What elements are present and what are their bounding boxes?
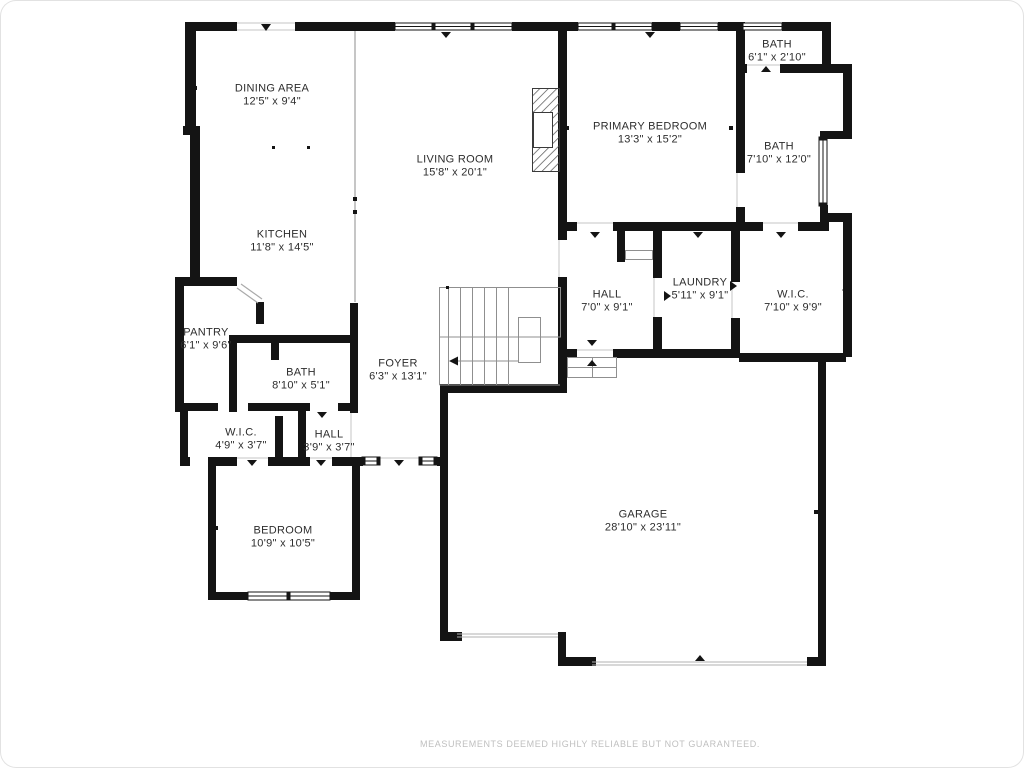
room-name: KITCHEN xyxy=(250,229,313,242)
room-label-garage: GARAGE28'10" x 23'11" xyxy=(605,509,681,534)
room-name: BATH xyxy=(272,367,330,380)
window-sidelight-right xyxy=(419,457,437,465)
room-label-bath-middle: BATH8'10" x 5'1" xyxy=(272,367,330,392)
room-dimensions: 3'9" x 3'7" xyxy=(303,441,354,454)
room-dimensions: 7'10" x 9'9" xyxy=(764,301,822,314)
disclaimer-text: MEASUREMENTS DEEMED HIGHLY RELIABLE BUT … xyxy=(420,739,760,749)
room-label-dining-area: DINING AREA12'5" x 9'4" xyxy=(235,83,309,108)
room-name: W.I.C. xyxy=(215,427,266,440)
window-bath-top xyxy=(743,23,782,30)
room-label-living-room: LIVING ROOM15'8" x 20'1" xyxy=(417,154,494,179)
stairs xyxy=(440,288,561,386)
room-dimensions: 6'1" x 2'10" xyxy=(748,51,806,64)
window-bedroom xyxy=(248,592,330,600)
room-dimensions: 13'3" x 15'2" xyxy=(593,133,707,146)
pantry-door-swing xyxy=(237,284,262,303)
room-dimensions: 5'11" x 9'1" xyxy=(672,289,729,302)
closet-bifold xyxy=(626,251,653,260)
room-dimensions: 11'8" x 14'5" xyxy=(250,241,313,254)
room-name: BATH xyxy=(747,141,811,154)
window-sidelight-left xyxy=(362,457,380,465)
room-label-primary-bedroom: PRIMARY BEDROOM13'3" x 15'2" xyxy=(593,121,707,146)
room-dimensions: 15'8" x 20'1" xyxy=(417,166,494,179)
floor-plan-sheet: DINING AREA12'5" x 9'4"LIVING ROOM15'8" … xyxy=(0,0,1024,768)
room-dimensions: 12'5" x 9'4" xyxy=(235,95,309,108)
stairs-direction-arrow xyxy=(449,357,458,366)
room-name: GARAGE xyxy=(605,509,681,522)
room-label-hall-upper: HALL7'0" x 9'1" xyxy=(581,289,632,314)
room-name: DINING AREA xyxy=(235,83,309,96)
room-name: HALL xyxy=(581,289,632,302)
room-label-wic-lower: W.I.C.4'9" x 3'7" xyxy=(215,427,266,452)
room-dimensions: 28'10" x 23'11" xyxy=(605,521,681,534)
room-label-bath-top: BATH6'1" x 2'10" xyxy=(748,39,806,64)
room-label-laundry: LAUNDRY5'11" x 9'1" xyxy=(672,277,729,302)
fireplace xyxy=(533,89,560,172)
window-primary-2 xyxy=(680,23,718,30)
window-primary-1 xyxy=(578,23,652,30)
room-dimensions: 7'10" x 12'0" xyxy=(747,153,811,166)
room-label-bath-right: BATH7'10" x 12'0" xyxy=(747,141,811,166)
room-dimensions: 10'9" x 10'5" xyxy=(251,537,315,550)
room-name: LIVING ROOM xyxy=(417,154,494,167)
window-bath-right xyxy=(819,137,827,206)
room-name: LAUNDRY xyxy=(672,277,729,290)
room-dimensions: 6'1" x 9'6" xyxy=(180,339,231,352)
room-label-hall-lower: HALL3'9" x 3'7" xyxy=(303,429,354,454)
room-name: BEDROOM xyxy=(251,525,315,538)
room-name: PRIMARY BEDROOM xyxy=(593,121,707,134)
room-name: FOYER xyxy=(369,358,427,371)
floor-plan-drawing xyxy=(0,0,1024,768)
garage-door-lines xyxy=(457,634,807,665)
room-dimensions: 6'3" x 13'1" xyxy=(369,370,427,383)
room-name: W.I.C. xyxy=(764,289,822,302)
room-name: BATH xyxy=(748,39,806,52)
room-dimensions: 7'0" x 9'1" xyxy=(581,301,632,314)
room-name: PANTRY xyxy=(180,327,231,340)
room-dimensions: 4'9" x 3'7" xyxy=(215,439,266,452)
room-label-kitchen: KITCHEN11'8" x 14'5" xyxy=(250,229,313,254)
room-label-foyer: FOYER6'3" x 13'1" xyxy=(369,358,427,383)
window-living-room xyxy=(395,23,512,30)
room-label-wic-primary: W.I.C.7'10" x 9'9" xyxy=(764,289,822,314)
room-label-bedroom: BEDROOM10'9" x 10'5" xyxy=(251,525,315,550)
walls xyxy=(175,22,852,666)
room-dimensions: 8'10" x 5'1" xyxy=(272,379,330,392)
room-name: HALL xyxy=(303,429,354,442)
room-label-pantry: PANTRY6'1" x 9'6" xyxy=(180,327,231,352)
